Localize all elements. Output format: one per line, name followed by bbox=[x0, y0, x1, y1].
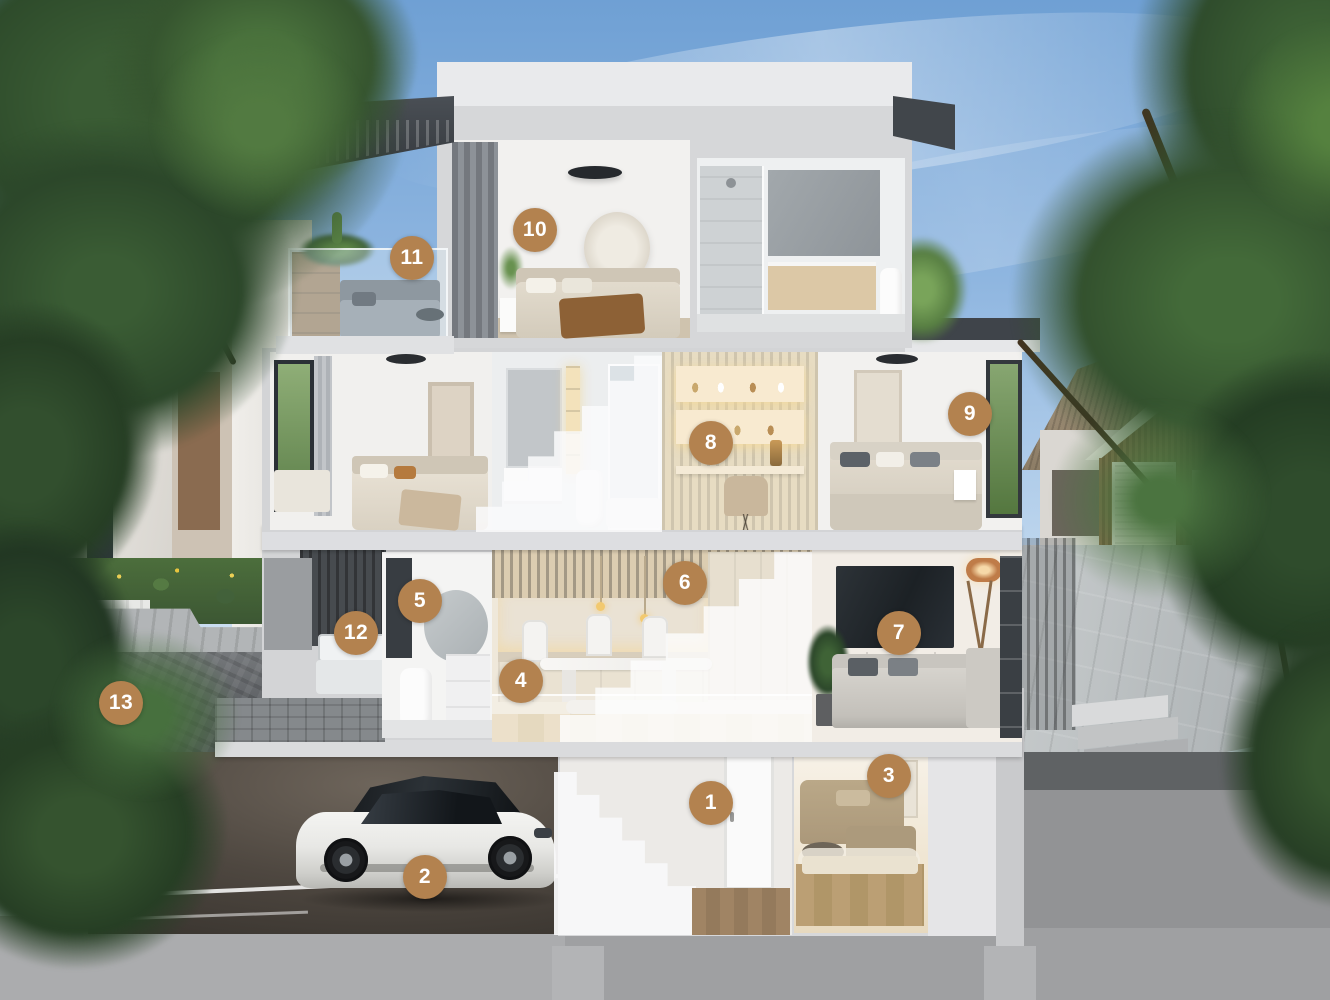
room-marker-2[interactable]: 2 bbox=[403, 855, 447, 899]
room-marker-layer: 12345678910111213 bbox=[0, 0, 1330, 1000]
room-marker-8[interactable]: 8 bbox=[689, 421, 733, 465]
room-marker-12[interactable]: 12 bbox=[334, 611, 378, 655]
room-marker-7[interactable]: 7 bbox=[877, 611, 921, 655]
room-marker-9[interactable]: 9 bbox=[948, 392, 992, 436]
room-marker-4[interactable]: 4 bbox=[499, 659, 543, 703]
architectural-cutaway-scene: 12345678910111213 bbox=[0, 0, 1330, 1000]
room-marker-3[interactable]: 3 bbox=[867, 754, 911, 798]
room-marker-11[interactable]: 11 bbox=[390, 236, 434, 280]
room-marker-13[interactable]: 13 bbox=[99, 681, 143, 725]
room-marker-10[interactable]: 10 bbox=[513, 208, 557, 252]
room-marker-1[interactable]: 1 bbox=[689, 781, 733, 825]
room-marker-5[interactable]: 5 bbox=[398, 579, 442, 623]
room-marker-6[interactable]: 6 bbox=[663, 561, 707, 605]
